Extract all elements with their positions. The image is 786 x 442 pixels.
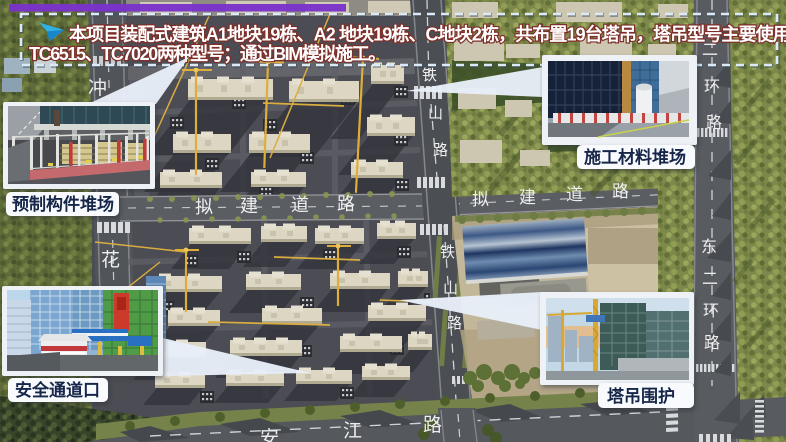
svg-text:建: 建 [519,188,536,207]
svg-text:路: 路 [706,114,722,132]
svg-text:路: 路 [612,182,629,201]
svg-text:路: 路 [447,315,462,332]
svg-text:拟: 拟 [195,197,213,217]
svg-text:冲: 冲 [88,77,107,99]
svg-text:山: 山 [443,280,458,297]
svg-text:环: 环 [704,79,720,96]
svg-text:二: 二 [702,42,718,59]
svg-text:安: 安 [260,427,279,442]
svg-text:拟: 拟 [472,190,489,209]
svg-text:路: 路 [704,334,720,352]
svg-text:铁: 铁 [440,244,455,261]
svg-text:TC6515、TC7020两种型号；通过BIM模拟施工。: TC6515、TC7020两种型号；通过BIM模拟施工。 [29,43,385,64]
svg-text:塔吊围护: 塔吊围护 [607,386,675,406]
svg-text:施工材料堆场: 施工材料堆场 [584,147,686,167]
svg-text:铁: 铁 [422,67,437,84]
svg-text:二: 二 [702,271,718,288]
svg-text:道: 道 [291,195,309,215]
svg-text:本项目装配式建筑A1地块19栋、A2 地块19栋、C地块2栋: 本项目装配式建筑A1地块19栋、A2 地块19栋、C地块2栋，共布置19台塔吊，… [69,24,786,45]
svg-text:东: 东 [701,238,717,256]
svg-text:路: 路 [337,194,355,214]
svg-text:路: 路 [423,414,442,436]
svg-text:建: 建 [240,196,258,216]
svg-text:环: 环 [703,303,719,320]
svg-text:花: 花 [101,249,120,271]
svg-text:江: 江 [343,420,362,442]
svg-text:山: 山 [428,105,443,122]
svg-text:安全通道口: 安全通道口 [15,380,100,400]
svg-text:预制构件堆场: 预制构件堆场 [12,194,114,214]
svg-text:路: 路 [433,142,448,159]
svg-text:道: 道 [566,185,583,204]
